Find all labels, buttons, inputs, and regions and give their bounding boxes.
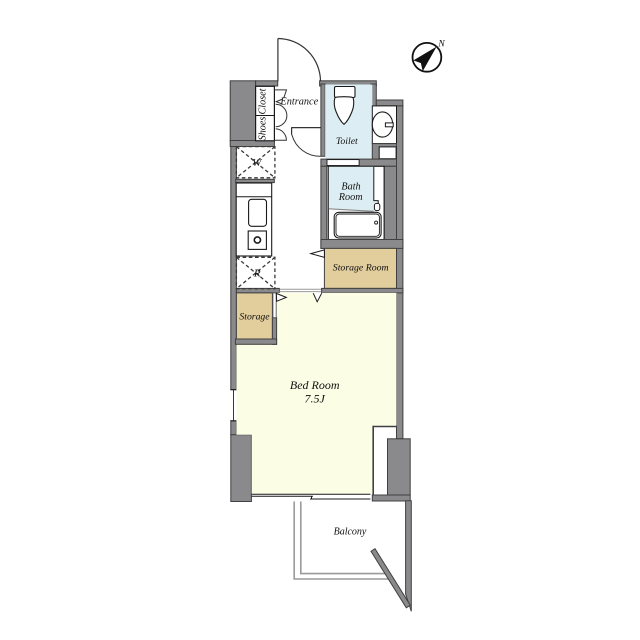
svg-text:Bed Room: Bed Room (290, 378, 340, 392)
svg-text:Closet: Closet (258, 87, 269, 114)
svg-text:Room: Room (338, 192, 363, 203)
svg-text:Balcony: Balcony (334, 526, 367, 537)
svg-text:N: N (437, 40, 445, 50)
svg-text:Toilet: Toilet (336, 136, 358, 147)
svg-text:7.5J: 7.5J (305, 392, 326, 406)
svg-text:Storage: Storage (239, 311, 270, 322)
svg-text:Shoes: Shoes (258, 117, 269, 141)
svg-text:Entrance: Entrance (279, 97, 318, 108)
svg-text:W: W (252, 157, 262, 169)
svg-text:Storage Room: Storage Room (333, 263, 389, 274)
svg-text:R: R (253, 268, 261, 280)
